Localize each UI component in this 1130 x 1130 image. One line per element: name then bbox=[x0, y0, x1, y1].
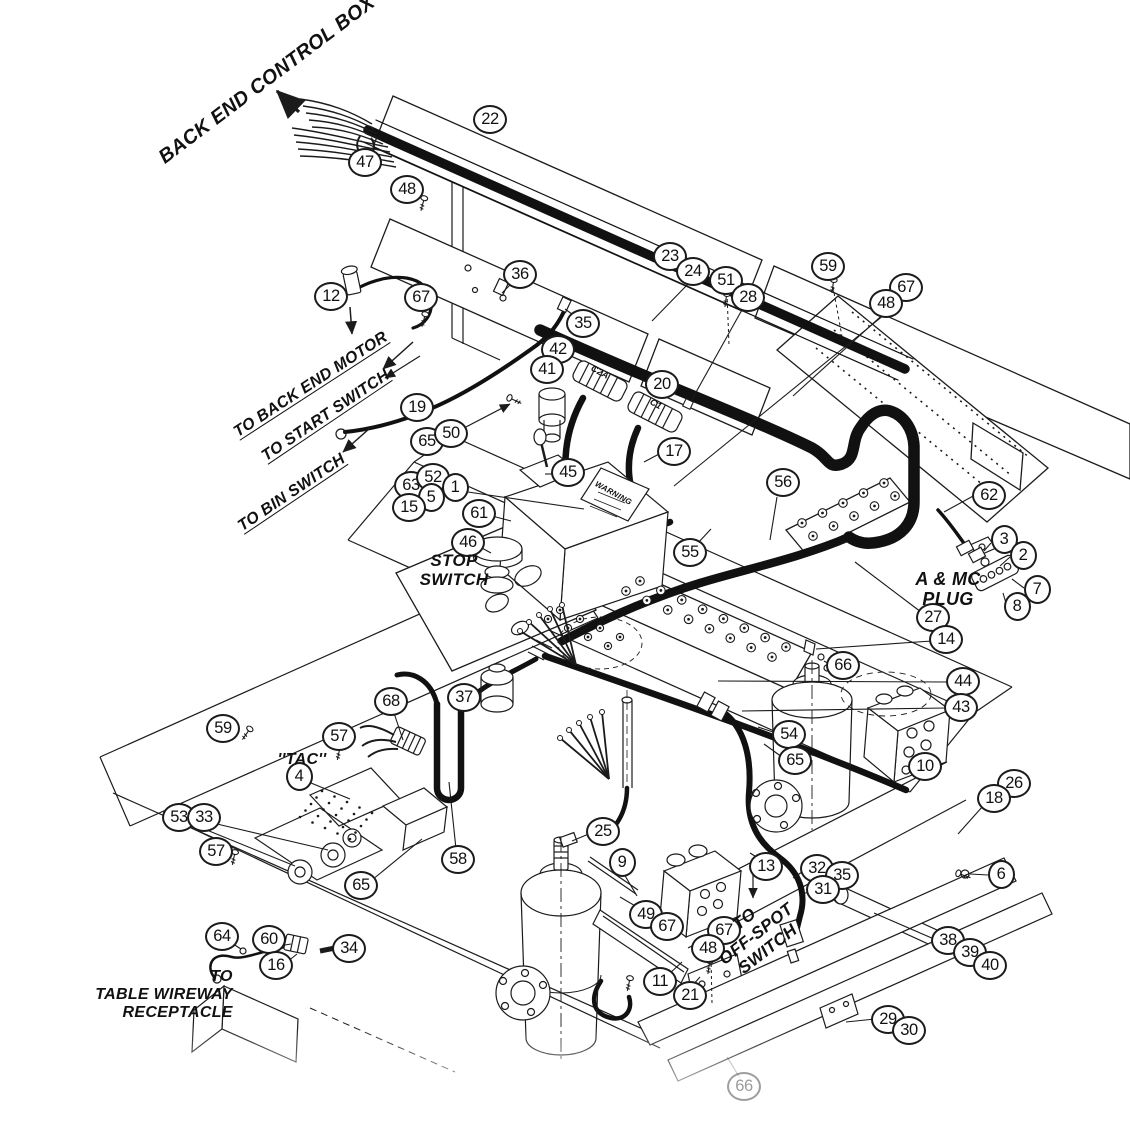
callout-48: 48 bbox=[869, 289, 903, 318]
callout-61: 61 bbox=[462, 499, 496, 528]
callout-67: 67 bbox=[650, 912, 684, 941]
label-to-table-wireway-receptacle: TOTABLE WIREWAYRECEPTACLE bbox=[95, 968, 233, 1022]
callout-57: 57 bbox=[322, 722, 356, 751]
callout-25: 25 bbox=[586, 817, 620, 846]
callout-40: 40 bbox=[973, 951, 1007, 980]
callout-59: 59 bbox=[206, 714, 240, 743]
callout-35: 35 bbox=[566, 309, 600, 338]
callout-58: 58 bbox=[441, 845, 475, 874]
callout-45: 45 bbox=[551, 458, 585, 487]
callout-21: 21 bbox=[673, 981, 707, 1010]
callout-13: 13 bbox=[749, 852, 783, 881]
label-tac: ''TAC'' bbox=[277, 751, 326, 769]
callout-34: 34 bbox=[332, 934, 366, 963]
callout-37: 37 bbox=[447, 683, 481, 712]
callout-2: 2 bbox=[1010, 541, 1037, 570]
callout-43: 43 bbox=[944, 693, 978, 722]
callout-54: 54 bbox=[772, 720, 806, 749]
callout-31: 31 bbox=[806, 875, 840, 904]
callout-55: 55 bbox=[673, 538, 707, 567]
callout-56: 56 bbox=[766, 468, 800, 497]
callout-48: 48 bbox=[390, 175, 424, 204]
callout-62: 62 bbox=[972, 481, 1006, 510]
label-a-and-mc-plug: A & MCPLUG bbox=[915, 569, 980, 609]
callout-33: 33 bbox=[187, 803, 221, 832]
callout-59: 59 bbox=[811, 252, 845, 281]
callout-24: 24 bbox=[676, 257, 710, 286]
callout-18: 18 bbox=[977, 784, 1011, 813]
label-stop-switch: STOPSWITCH bbox=[420, 551, 489, 589]
callout-22: 22 bbox=[473, 105, 507, 134]
callout-44: 44 bbox=[946, 667, 980, 696]
callout-14: 14 bbox=[929, 625, 963, 654]
callout-41: 41 bbox=[530, 355, 564, 384]
callout-36: 36 bbox=[503, 260, 537, 289]
callout-57: 57 bbox=[199, 837, 233, 866]
callout-67: 67 bbox=[404, 283, 438, 312]
callout-65: 65 bbox=[778, 746, 812, 775]
bottom-fade bbox=[0, 1025, 1130, 1130]
callout-11: 11 bbox=[643, 967, 677, 996]
callout-65: 65 bbox=[344, 871, 378, 900]
callout-68: 68 bbox=[374, 687, 408, 716]
callout-30: 30 bbox=[892, 1016, 926, 1045]
parts-diagram: 2247481267362324512859674835424119655020… bbox=[0, 0, 1130, 1130]
callout-12: 12 bbox=[314, 282, 348, 311]
callout-17: 17 bbox=[657, 437, 691, 466]
callout-28: 28 bbox=[731, 283, 765, 312]
callout-66: 66 bbox=[727, 1072, 761, 1101]
callout-66: 66 bbox=[826, 651, 860, 680]
callout-6: 6 bbox=[988, 860, 1015, 889]
callout-10: 10 bbox=[908, 752, 942, 781]
callout-64: 64 bbox=[205, 922, 239, 951]
callout-8: 8 bbox=[1004, 592, 1031, 621]
callout-9: 9 bbox=[609, 848, 636, 877]
callout-60: 60 bbox=[252, 925, 286, 954]
callout-20: 20 bbox=[645, 370, 679, 399]
callout-50: 50 bbox=[434, 419, 468, 448]
callout-16: 16 bbox=[259, 951, 293, 980]
callout-19: 19 bbox=[400, 393, 434, 422]
callout-1: 1 bbox=[442, 473, 469, 502]
callout-47: 47 bbox=[348, 148, 382, 177]
callout-15: 15 bbox=[392, 493, 426, 522]
